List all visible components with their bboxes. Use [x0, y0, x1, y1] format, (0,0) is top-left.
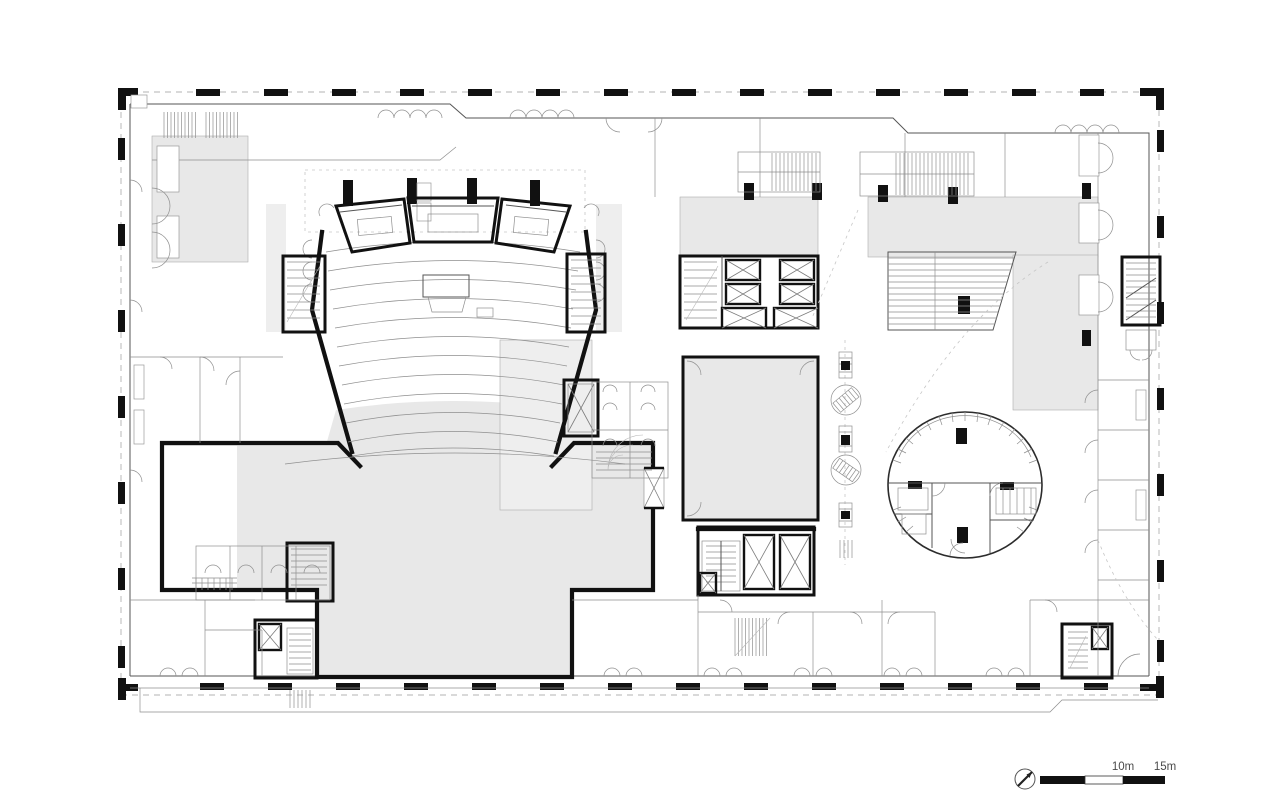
floor-plan-canvas: 10m 15m — [0, 0, 1280, 810]
scale-label-10m: 10m — [1112, 761, 1134, 773]
hall-white-strip — [163, 446, 237, 588]
scale-label-15m: 15m — [1154, 761, 1176, 773]
zone-above-core — [680, 197, 818, 257]
zone-top-right-band — [868, 197, 1098, 257]
zone-mid-room — [683, 357, 818, 520]
